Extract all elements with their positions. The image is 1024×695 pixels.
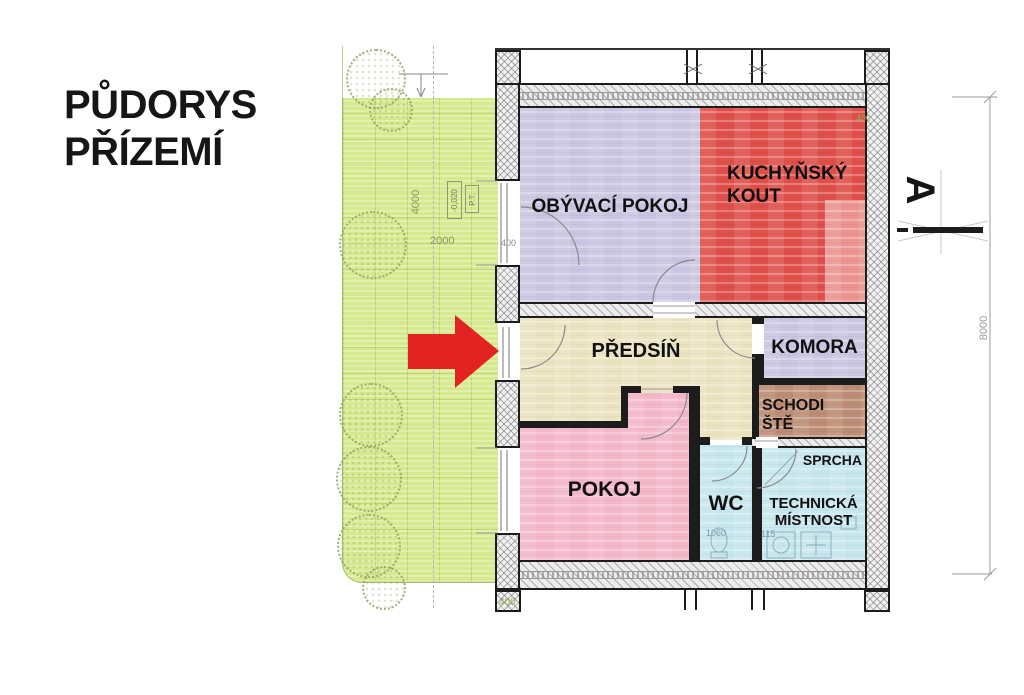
- dim-tech: 115: [761, 529, 775, 539]
- wall-wc-tech: [752, 448, 762, 560]
- room-label-technicka-line1: TECHNICKÁ: [762, 495, 865, 512]
- porch-stub-left: [495, 50, 521, 85]
- wall-left-seg1: [495, 83, 520, 181]
- room-label-kuchynsky-line1: KUCHYŇSKÝ: [727, 162, 847, 185]
- dim-terrace-width: 4000: [410, 190, 422, 214]
- kitchen-counter-area: [825, 200, 865, 302]
- room-label-schodiste-line1: SCHODI: [762, 396, 824, 415]
- door-opening-living: [653, 302, 695, 318]
- wall-wc-top-left: [700, 437, 710, 445]
- section-cut-dash: [897, 228, 908, 232]
- porch-stub-right: [864, 50, 890, 85]
- room-label-schodiste-line2: ŠTĚ: [762, 415, 824, 434]
- property-dashed-line: [433, 46, 434, 608]
- dim-wall-400-top: 400: [856, 113, 870, 123]
- elevation-mark-box: -0,020: [447, 181, 462, 219]
- porch-stub-mid-2: [751, 50, 763, 85]
- wall-wc-top-right: [742, 437, 752, 445]
- wall-left-seg2: [495, 265, 520, 323]
- room-label-sprcha: SPRCHA: [762, 452, 864, 468]
- room-label-schodiste: SCHODIŠTĚ: [762, 396, 824, 434]
- wall-schodiste-left: [752, 385, 759, 437]
- terrace-edge-line: [342, 46, 343, 98]
- door-opening-technicka: [756, 437, 778, 448]
- room-pokoj-upper: [628, 393, 689, 428]
- room-label-predsin: PŘEDSÍŇ: [520, 340, 752, 363]
- section-marker-label: A: [898, 168, 942, 212]
- room-label-kuchynsky-kout: KUCHYŇSKÝKOUT: [727, 162, 847, 208]
- wall-pokoj-right: [689, 386, 700, 560]
- section-cut-line: [913, 227, 983, 233]
- wall-left-seg4: [495, 533, 520, 590]
- porch-stub-mid-1: [686, 50, 698, 85]
- terrain-mark: P.T.: [468, 193, 477, 206]
- page-title-line2: PŘÍZEMÍ: [64, 129, 257, 176]
- room-label-technicka-line2: MÍSTNOST: [762, 512, 865, 529]
- floorplan-page: PŮDORYSPŘÍZEMÍ: [0, 0, 1024, 695]
- page-title-line1: PŮDORYS: [64, 82, 257, 129]
- bush: [362, 566, 406, 610]
- bush: [339, 211, 407, 279]
- porch-stub-bottom-mid-2: [751, 590, 765, 610]
- bush: [336, 446, 402, 512]
- wall-bottom-core: [497, 571, 888, 579]
- wall-top-core: [497, 92, 888, 100]
- room-label-komora: KOMORA: [764, 337, 865, 359]
- terrain-mark-box: P.T.: [465, 185, 479, 213]
- wall-pokoj-top: [520, 421, 628, 428]
- dim-terrace-length: 2000: [430, 235, 454, 247]
- dim-wall-400-bottom: 400: [499, 597, 516, 608]
- room-label-obyvaci-pokoj: OBÝVACÍ POKOJ: [520, 196, 700, 218]
- porch-stub-bottom-right: [864, 590, 890, 612]
- page-title: PŮDORYSPŘÍZEMÍ: [64, 82, 257, 176]
- room-label-technicka: TECHNICKÁMÍSTNOST: [762, 495, 865, 529]
- door-opening-komora: [752, 324, 764, 354]
- room-label-kuchynsky-line2: KOUT: [727, 185, 847, 208]
- wall-pokoj-upper-left: [621, 386, 641, 393]
- room-label-pokoj: POKOJ: [520, 478, 689, 502]
- bush: [339, 383, 403, 447]
- wall-schodiste-top: [752, 378, 865, 385]
- room-label-wc: WC: [700, 492, 752, 516]
- dim-wc-width: 1060: [706, 528, 726, 538]
- dim-window-400: 400: [501, 238, 516, 248]
- dimension-line-right: [952, 91, 997, 580]
- wall-left-seg3: [495, 380, 520, 448]
- wall-right: [865, 83, 890, 590]
- dim-building-height: 8000: [978, 316, 990, 340]
- window-glazing: [501, 183, 509, 531]
- porch-stub-bottom-mid-1: [684, 590, 697, 610]
- bush: [369, 88, 413, 132]
- elevation-mark: -0,020: [450, 189, 459, 212]
